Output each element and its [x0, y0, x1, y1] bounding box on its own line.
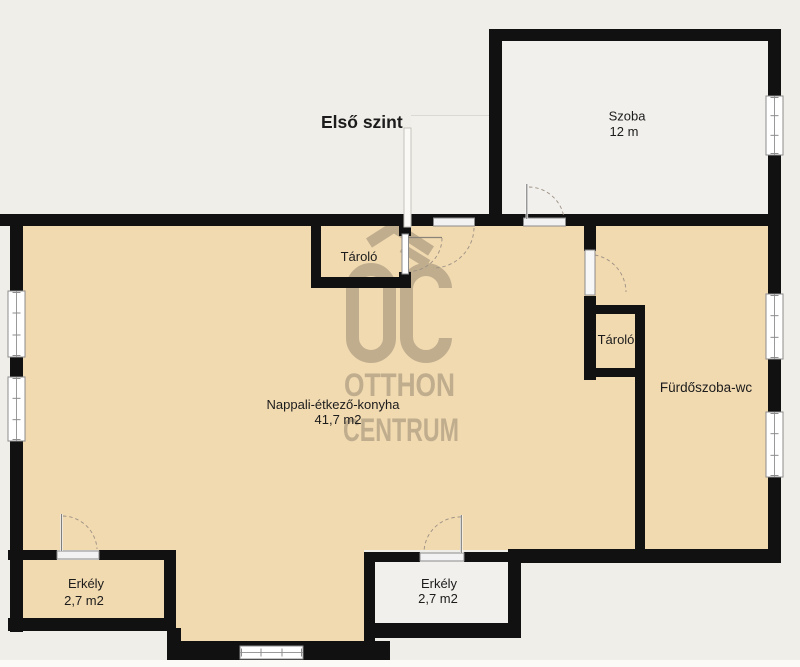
svg-text:2,7 m2: 2,7 m2: [418, 591, 458, 606]
svg-text:Fürdőszoba-wc: Fürdőszoba-wc: [660, 380, 753, 395]
svg-text:12 m: 12 m: [610, 124, 639, 139]
svg-text:Szoba: Szoba: [609, 109, 647, 124]
svg-text:Tároló: Tároló: [598, 332, 635, 347]
svg-text:Erkély: Erkély: [421, 576, 458, 591]
svg-text:Első szint: Első szint: [321, 112, 403, 132]
svg-text:Nappali-étkező-konyha: Nappali-étkező-konyha: [267, 397, 401, 412]
svg-text:41,7 m2: 41,7 m2: [315, 412, 362, 427]
svg-text:2,7 m2: 2,7 m2: [64, 593, 104, 608]
svg-text:Erkély: Erkély: [68, 576, 105, 591]
svg-text:Tároló: Tároló: [341, 249, 378, 264]
